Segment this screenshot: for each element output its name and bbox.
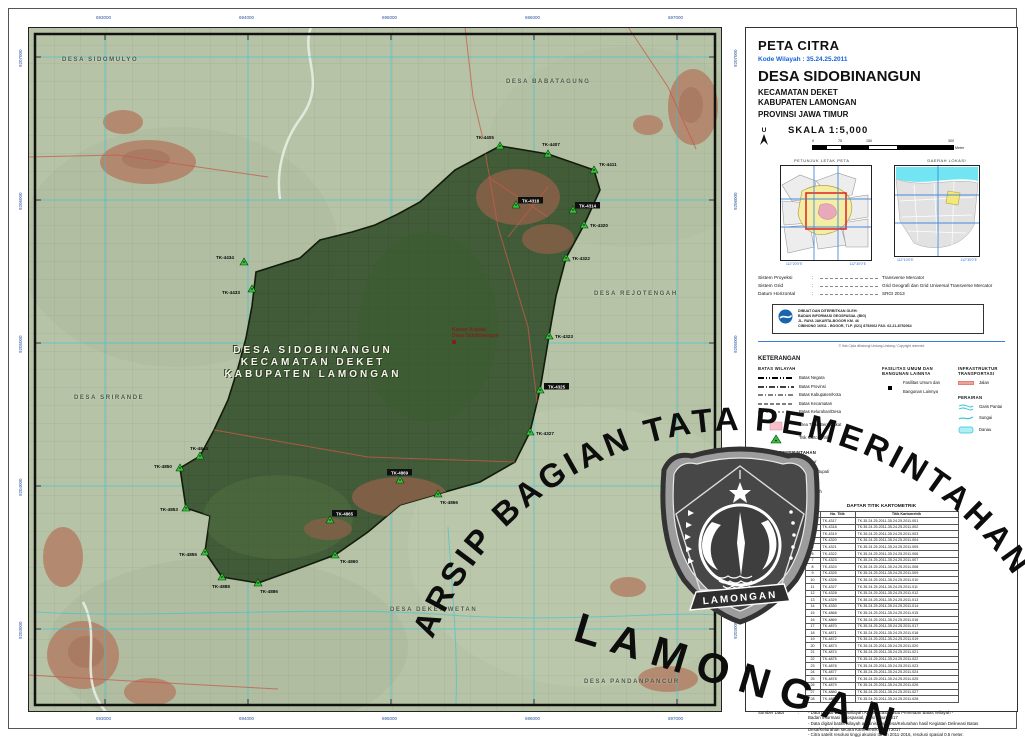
kartometric-point-icon: [770, 434, 782, 444]
public-facility-icon: [887, 385, 893, 391]
table-row: 12TK-4328TK.35.24.25.2011-35.24.25.2011.…: [805, 590, 958, 597]
village-title: DESA SIDOBINANGUN: [758, 68, 1005, 85]
graticule-label: 695000: [382, 15, 397, 20]
legend: BATAS WILAYAH Batas Negara Batas Provins…: [758, 366, 1005, 498]
table-row: 28TK-4881TK.35.24.25.2011-35.24.25.2011.…: [805, 696, 958, 703]
inset-right-caption: DAERAH LOKASI: [927, 158, 966, 163]
river-icon: [958, 414, 974, 422]
scale-bar: 0 75 150 300 Meter: [812, 140, 962, 152]
table-row: 7TK-4323TK.35.24.25.2011-35.24.25.2011.0…: [805, 557, 958, 564]
inset-map-regency: 112°10'0"E 112°30'0"E: [894, 165, 980, 266]
graticule-label: 9204000: [733, 478, 738, 496]
inset-left-caption: PETUNJUK LETAK PETA: [794, 158, 849, 163]
table-row: 10TK-4326TK.35.24.25.2011-35.24.25.2011.…: [805, 577, 958, 584]
copyright-line: © Hak Cipta dilindungi Undang-Undang / C…: [758, 341, 1005, 348]
village-office-icon: [452, 340, 456, 344]
graticule-label: 694000: [239, 716, 254, 721]
inset-map-location-index: 112°20'0"E 112°30'0"E: [780, 165, 872, 266]
table-row: 15TK-4868TK.35.24.25.2011-35.24.25.2011.…: [805, 610, 958, 617]
graticule-label: 9203000: [18, 621, 23, 639]
map-label-overlay: DESA SIDOBINANGUN KECAMATAN DEKET KABUPA…: [28, 27, 722, 712]
table-row: 20TK-4873TK.35.24.25.2011-35.24.25.2011.…: [805, 643, 958, 650]
table-row: 18TK-4871TK.35.24.25.2011-35.24.25.2011.…: [805, 630, 958, 637]
data-sources: Sumber Data: - Data Digital Batas Wilaya…: [758, 710, 1005, 737]
graticule-label: 697000: [668, 15, 683, 20]
neighbor-village-label: DESA BABATAGUNG: [506, 79, 591, 85]
map-sheet: TK-4405TK-4407TK-4411TK-4318TK-4314TK-43…: [0, 0, 1025, 737]
scale-label: SKALA 1:5,000: [788, 125, 962, 136]
table-row: 13TK-4329TK.35.24.25.2011-35.24.25.2011.…: [805, 597, 958, 604]
disputed-area-icon: [769, 421, 783, 431]
neighbor-village-label: DESA PANDANPANCUR: [584, 679, 680, 685]
graticule-label: 697000: [668, 716, 683, 721]
kartometrik-table-body: 1TK-4317TK.35.24.25.2011-35.24.25.2011.0…: [805, 518, 958, 703]
table-row: 6TK-4322TK.35.24.25.2011-35.24.25.2011.0…: [805, 551, 958, 558]
table-row: 3TK-4319TK.35.24.25.2011-35.24.25.2011.0…: [805, 531, 958, 538]
neighbor-village-label: DESA SRIRANDE: [74, 395, 144, 401]
big-logo-icon: [778, 309, 793, 324]
graticule-label: 9206000: [733, 192, 738, 210]
graticule-label: 696000: [525, 15, 540, 20]
publisher-box: DIBUAT DAN DITERBITKAN OLEH: BADAN INFOR…: [772, 304, 984, 334]
regency-title: KABUPATEN LAMONGAN: [758, 98, 1005, 108]
table-row: 17TK-4870TK.35.24.25.2011-35.24.25.2011.…: [805, 623, 958, 630]
lake-icon: [958, 426, 974, 434]
table-row: 26TK-4879TK.35.24.25.2011-35.24.25.2011.…: [805, 682, 958, 689]
graticule-label: 693000: [96, 15, 111, 20]
neighbor-village-label: DESA SIDOMULYO: [62, 57, 138, 63]
table-row: 8TK-4324TK.35.24.25.2011-35.24.25.2011.0…: [805, 564, 958, 571]
projection-info: Sistem Proyeksi:Transverse Mercator Sist…: [758, 274, 1005, 298]
table-row: 22TK-4875TK.35.24.25.2011-35.24.25.2011.…: [805, 656, 958, 663]
camat-office-icon: [771, 478, 781, 488]
graticule-label: 9205000: [733, 335, 738, 353]
table-row: 23TK-4876TK.35.24.25.2011-35.24.25.2011.…: [805, 663, 958, 670]
graticule-label: 9204000: [18, 478, 23, 496]
table-row: 5TK-4321TK.35.24.25.2011-35.24.25.2011.0…: [805, 544, 958, 551]
table-row: 2TK-4318TK.35.24.25.2011-35.24.25.2011.0…: [805, 524, 958, 531]
graticule-label: 9205000: [18, 335, 23, 353]
coastline-icon: [958, 403, 974, 411]
graticule-label: 9207000: [18, 49, 23, 67]
legend-title: KETERANGAN: [758, 356, 1005, 362]
graticule-label: 9207000: [733, 49, 738, 67]
province-title: PROVINSI JAWA TIMUR: [758, 110, 1005, 119]
table-row: 24TK-4877TK.35.24.25.2011-35.24.25.2011.…: [805, 669, 958, 676]
table-row: 9TK-4325TK.35.24.25.2011-35.24.25.2011.0…: [805, 570, 958, 577]
graticule-label: 695000: [382, 716, 397, 721]
governor-office-icon: [771, 458, 781, 468]
table-row: 27TK-4880TK.35.24.25.2011-35.24.25.2011.…: [805, 689, 958, 696]
graticule-label: 696000: [525, 716, 540, 721]
graticule-label: 9203000: [733, 621, 738, 639]
title-panel: PETA CITRA Kode Wilayah : 35.24.25.2011 …: [745, 27, 1018, 712]
document-type: PETA CITRA: [758, 38, 1005, 53]
table-row: 14TK-4330TK.35.24.25.2011-35.24.25.2011.…: [805, 603, 958, 610]
table-row: 4TK-4320TK.35.24.25.2011-35.24.25.2011.0…: [805, 537, 958, 544]
north-arrow-icon: U: [758, 125, 770, 147]
neighbor-village-label: DESA DEKET WETAN: [390, 607, 477, 613]
district-title: KECAMATAN DEKET: [758, 88, 1005, 98]
table-row: 16TK-4869TK.35.24.25.2011-35.24.25.2011.…: [805, 617, 958, 624]
map-area: TK-4405TK-4407TK-4411TK-4318TK-4314TK-43…: [28, 27, 722, 712]
svg-text:U: U: [762, 127, 767, 134]
graticule-label: 9206000: [18, 192, 23, 210]
table-row: 11TK-4327TK.35.24.25.2011-35.24.25.2011.…: [805, 584, 958, 591]
graticule-label: 693000: [96, 716, 111, 721]
kartometrik-table: DAFTAR TITIK KARTOMETRIK No. No. Titik T…: [758, 504, 1005, 703]
table-row: 25TK-4878TK.35.24.25.2011-35.24.25.2011.…: [805, 676, 958, 683]
neighbor-village-label: DESA REJOTENGAH: [594, 291, 678, 297]
table-row: 1TK-4317TK.35.24.25.2011-35.24.25.2011.0…: [805, 518, 958, 525]
village-name-label: DESA SIDOBINANGUN KECAMATAN DEKET KABUPA…: [193, 345, 433, 381]
road-icon: [958, 380, 974, 386]
table-row: 21TK-4874TK.35.24.25.2011-35.24.25.2011.…: [805, 649, 958, 656]
table-row: 19TK-4872TK.35.24.25.2011-35.24.25.2011.…: [805, 636, 958, 643]
village-office-label: Kantor Kepala Desa Sidobinangun: [452, 327, 499, 346]
kode-wilayah: Kode Wilayah : 35.24.25.2011: [758, 56, 1005, 63]
mayor-regent-office-icon: [764, 468, 788, 478]
village-office-icon: [764, 488, 788, 498]
graticule-label: 694000: [239, 15, 254, 20]
